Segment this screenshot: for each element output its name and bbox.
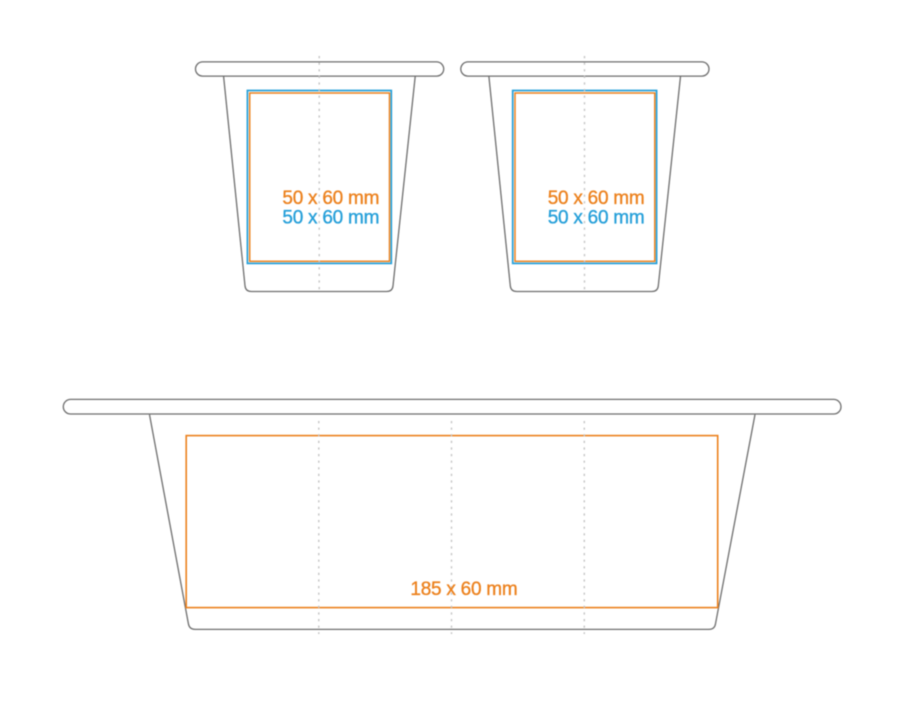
svg-text:50 x 60 mm: 50 x 60 mm bbox=[548, 208, 645, 229]
svg-text:185 x 60 mm: 185 x 60 mm bbox=[410, 579, 517, 600]
svg-text:50 x 60 mm: 50 x 60 mm bbox=[548, 188, 645, 209]
svg-text:50 x 60 mm: 50 x 60 mm bbox=[282, 188, 379, 209]
svg-text:50 x 60 mm: 50 x 60 mm bbox=[282, 208, 379, 229]
